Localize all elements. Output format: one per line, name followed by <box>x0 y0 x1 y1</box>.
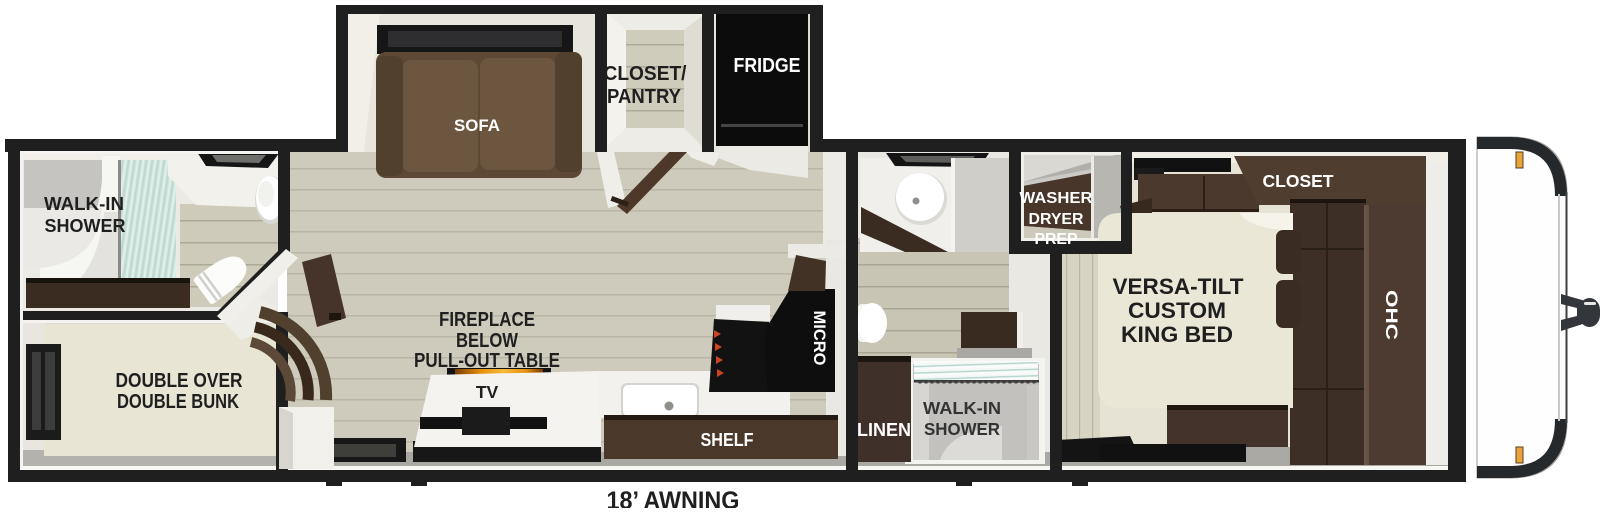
svg-text:SHOWER: SHOWER <box>45 216 126 236</box>
svg-text:WALK-IN: WALK-IN <box>44 194 124 214</box>
svg-text:SHELF: SHELF <box>701 430 754 450</box>
svg-text:LINEN: LINEN <box>857 420 911 440</box>
svg-text:SOFA: SOFA <box>454 116 500 135</box>
svg-text:FRIDGE: FRIDGE <box>734 55 801 77</box>
svg-text:VERSA-TILT: VERSA-TILT <box>1113 274 1245 299</box>
svg-text:DOUBLE BUNK: DOUBLE BUNK <box>117 391 239 413</box>
svg-text:PREP: PREP <box>1035 231 1078 248</box>
svg-text:CLOSET/: CLOSET/ <box>604 63 687 85</box>
svg-text:SHOWER: SHOWER <box>924 419 1000 439</box>
svg-text:OHC: OHC <box>1382 290 1401 340</box>
svg-text:DOUBLE OVER: DOUBLE OVER <box>116 370 243 392</box>
svg-text:KING BED: KING BED <box>1121 322 1233 347</box>
svg-text:18’ AWNING: 18’ AWNING <box>607 487 740 508</box>
svg-text:FIREPLACE: FIREPLACE <box>439 308 535 331</box>
svg-text:WASHER: WASHER <box>1020 190 1093 207</box>
svg-text:DRYER: DRYER <box>1029 211 1084 228</box>
svg-text:CLOSET: CLOSET <box>1263 171 1334 191</box>
svg-text:PULL-OUT TABLE: PULL-OUT TABLE <box>414 349 560 372</box>
svg-text:MICRO: MICRO <box>810 311 829 366</box>
svg-text:TV: TV <box>476 382 499 402</box>
svg-text:PANTRY: PANTRY <box>607 86 682 108</box>
svg-text:CUSTOM: CUSTOM <box>1128 298 1226 323</box>
svg-text:WALK-IN: WALK-IN <box>923 398 1001 418</box>
